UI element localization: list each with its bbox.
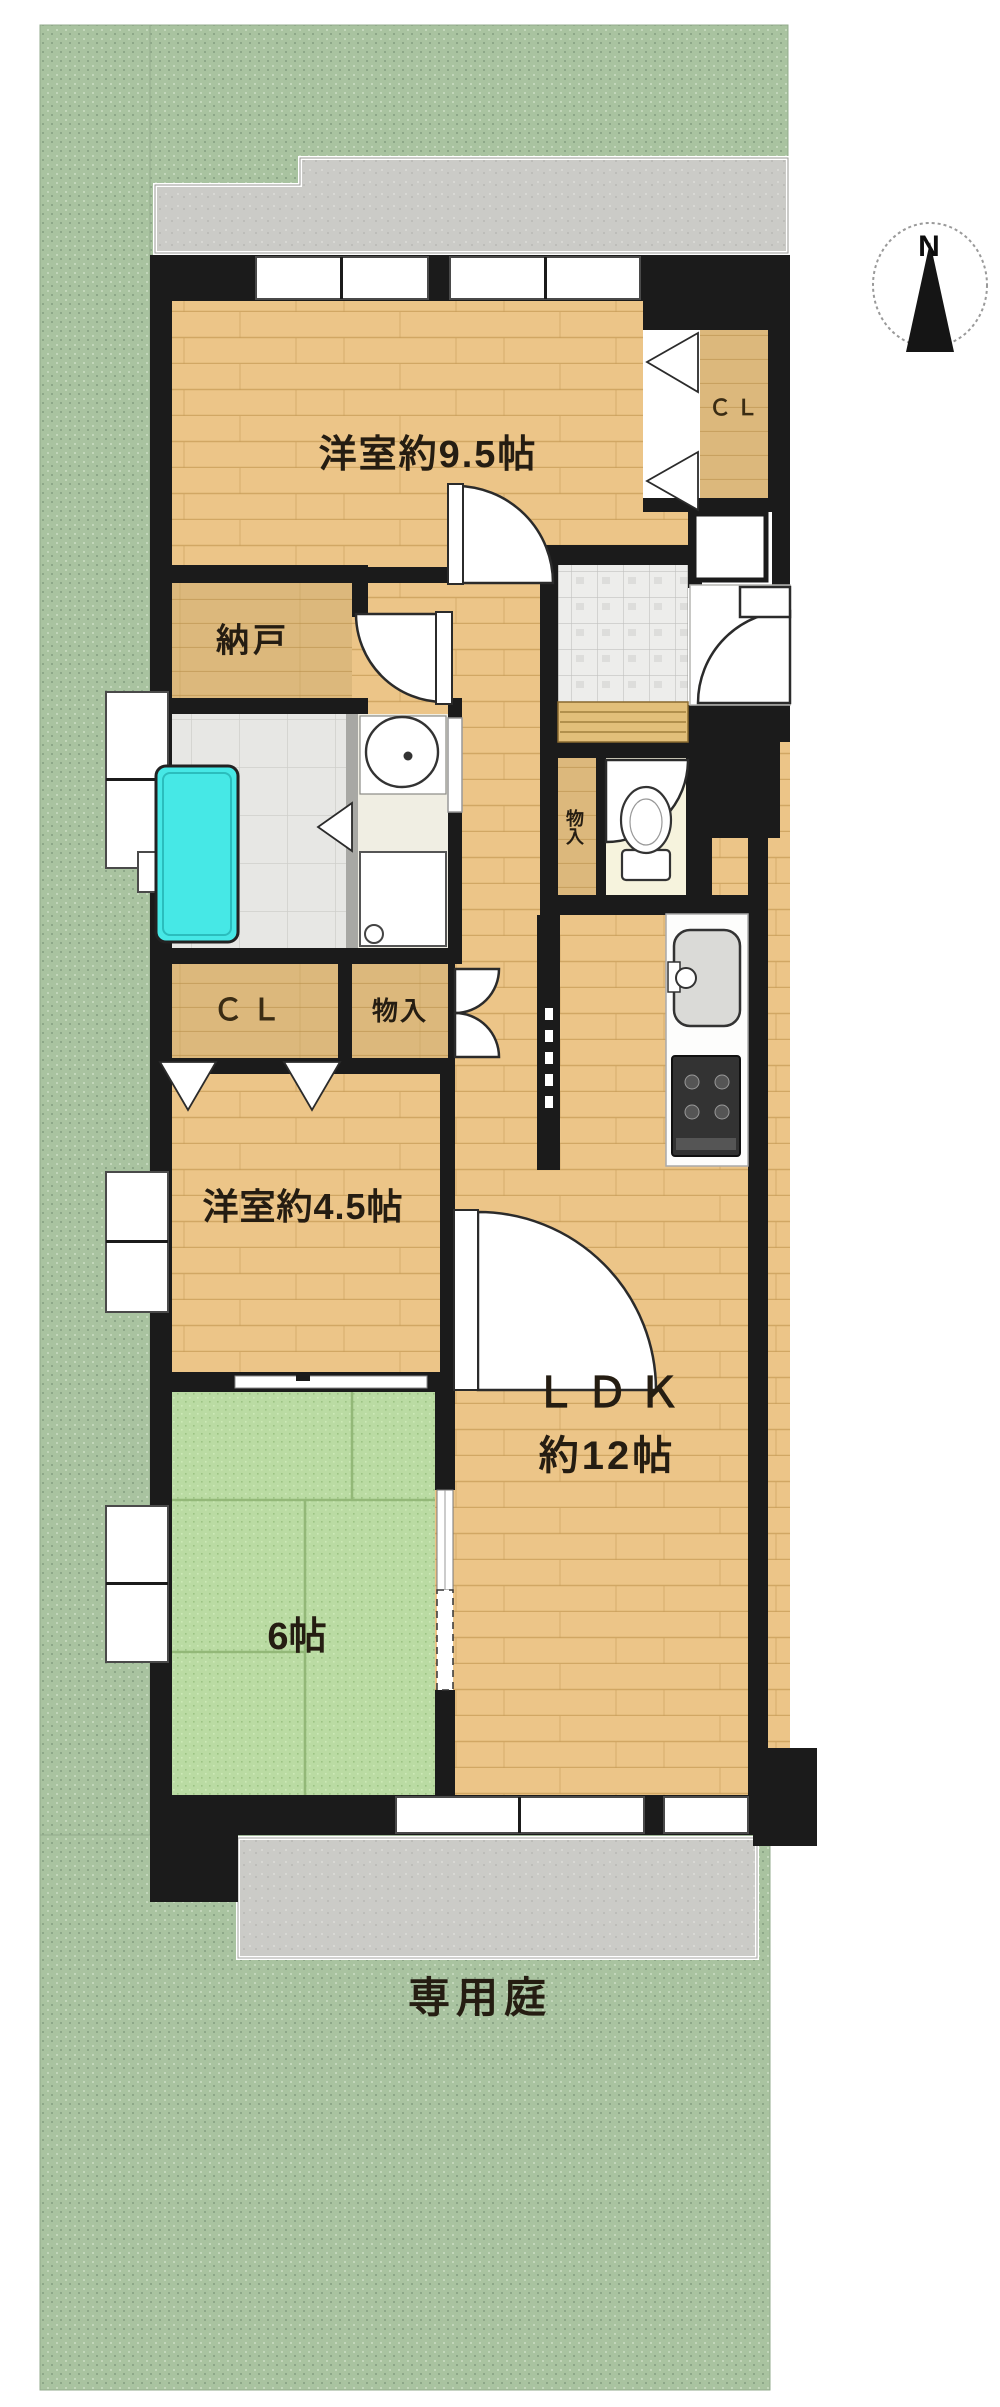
room-label-closet-main: ＣＬ [709,397,763,419]
entrance-step [558,702,688,742]
washroom-sliding-door [448,718,462,812]
room-label-monoiri-hall: 物入 [372,998,428,1024]
kitchen-sink-icon [668,930,740,1026]
room-label-closet-45: ＣＬ [213,996,289,1026]
washbasin-icon [360,716,446,794]
tatami-room-area [172,1392,435,1795]
room-label-western-9-5: 洋室約9.5帖 [319,436,538,474]
tatami-north-sliding-track [235,1376,427,1388]
stove-icon [672,1056,740,1156]
washing-machine-pan-icon [360,852,446,946]
tatami-ldk-sliding-lower [437,1590,453,1690]
room-label-monoiri-toilet: 物入 [565,809,583,845]
floorplan-graphics [0,0,1000,2407]
window-south-2 [664,1797,748,1833]
kitchen-counter [666,914,748,1166]
compass-north-label: N [918,232,940,262]
room-label-ldk-size: 約12帖 [539,1436,676,1476]
meter-box [694,514,766,580]
toilet-icon [621,787,671,880]
floorplan-image: 洋室約9.5帖 ＣＬ 納戸 ＣＬ 物入 物入 洋室約4.5帖 ＬＤＫ 約12帖 … [0,0,1000,2407]
room-label-tatami-6: 6帖 [267,1618,326,1656]
terrace-area [238,1838,757,1958]
room-label-western-4-5: 洋室約4.5帖 [202,1189,403,1225]
room-label-ldk: ＬＤＫ [534,1372,690,1414]
bathtub-icon [156,766,238,942]
entrance-tile-area [558,562,688,702]
label-private-garden: 専用庭 [408,1977,552,2019]
room-label-nando: 納戸 [216,624,290,657]
